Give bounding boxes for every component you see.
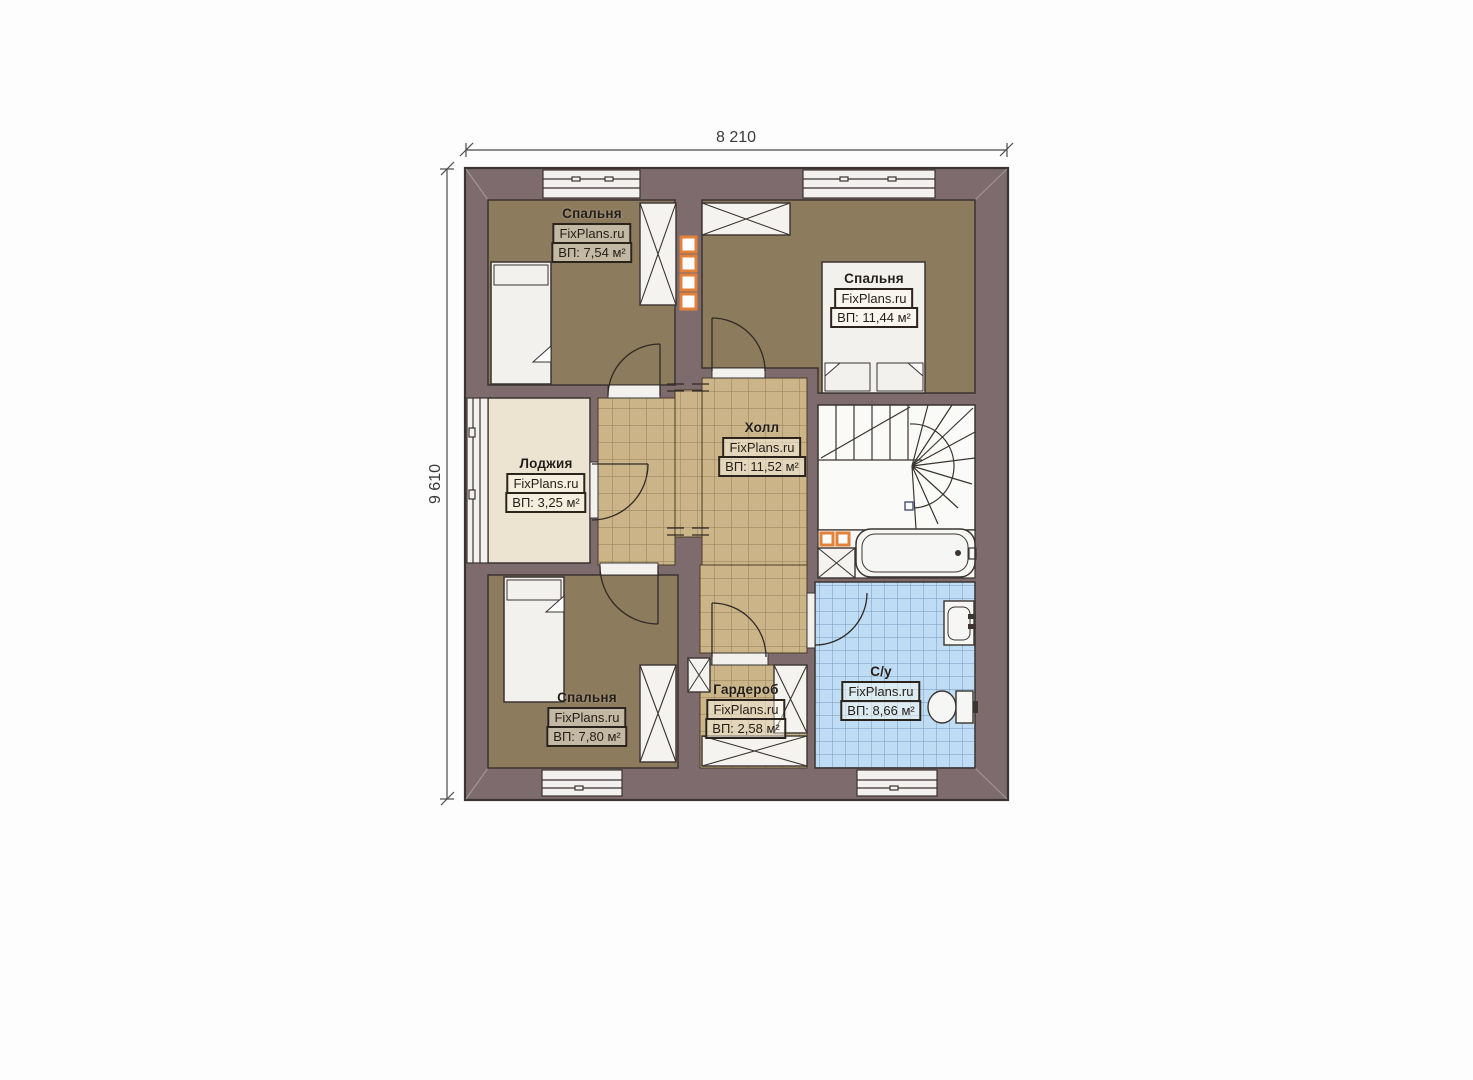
- bathtub: [856, 529, 976, 577]
- room-name: Лоджия: [505, 456, 586, 471]
- label-bathroom: С/у FixPlans.ru ВП: 8,66 м²: [840, 664, 921, 721]
- bed-single-bottom-left: [504, 577, 564, 702]
- label-wardrobe: Гардероб FixPlans.ru ВП: 2,58 м²: [705, 682, 786, 739]
- room-name: Спальня: [551, 206, 632, 221]
- label-hall: Холл FixPlans.ru ВП: 11,52 м²: [718, 420, 806, 477]
- floor-plan-canvas: 8 210 9 610: [0, 0, 1473, 1080]
- wardrobe-box: [702, 203, 790, 235]
- window-top-right: [803, 170, 935, 198]
- area-box: ВП: 11,44 м²: [830, 307, 918, 328]
- room-name: Спальня: [546, 690, 627, 705]
- watermark-box: FixPlans.ru: [506, 473, 585, 494]
- window-top-left: [543, 170, 640, 198]
- area-box: ВП: 2,58 м²: [705, 718, 786, 739]
- window-bottom-left: [542, 770, 622, 796]
- watermark-box: FixPlans.ru: [552, 223, 631, 244]
- room-name: Холл: [718, 420, 806, 435]
- area-box: ВП: 3,25 м²: [505, 492, 586, 513]
- watermark-box: FixPlans.ru: [841, 681, 920, 702]
- room-name: Спальня: [830, 271, 918, 286]
- loggia-glazing: [467, 398, 488, 563]
- room-name: Гардероб: [705, 682, 786, 697]
- area-box: ВП: 8,66 м²: [840, 700, 921, 721]
- area-box: ВП: 7,54 м²: [551, 242, 632, 263]
- label-loggia: Лоджия FixPlans.ru ВП: 3,25 м²: [505, 456, 586, 513]
- dimension-width-label: 8 210: [716, 129, 756, 146]
- wardrobe-box: [702, 736, 807, 766]
- hatch-under-stair: [818, 548, 855, 578]
- area-box: ВП: 11,52 м²: [718, 456, 806, 477]
- bed-single-top-left: [491, 262, 551, 384]
- watermark-box: FixPlans.ru: [834, 288, 913, 309]
- floor-plan-drawing: 8 210 9 610: [0, 0, 1473, 1080]
- wardrobe-box: [640, 665, 676, 762]
- label-bedroom-top-left: Спальня FixPlans.ru ВП: 7,54 м²: [551, 206, 632, 263]
- staircase-area: [818, 405, 975, 530]
- watermark-box: FixPlans.ru: [547, 707, 626, 728]
- window-bottom-right: [857, 770, 937, 796]
- watermark-box: FixPlans.ru: [706, 699, 785, 720]
- label-bedroom-bottom-left: Спальня FixPlans.ru ВП: 7,80 м²: [546, 690, 627, 747]
- room-name: С/у: [840, 664, 921, 679]
- label-bedroom-top-right: Спальня FixPlans.ru ВП: 11,44 м²: [830, 271, 918, 328]
- watermark-box: FixPlans.ru: [722, 437, 801, 458]
- washbasin: [944, 601, 976, 645]
- area-box: ВП: 7,80 м²: [546, 726, 627, 747]
- wardrobe-box: [640, 203, 676, 305]
- dimension-height-label: 9 610: [427, 464, 444, 504]
